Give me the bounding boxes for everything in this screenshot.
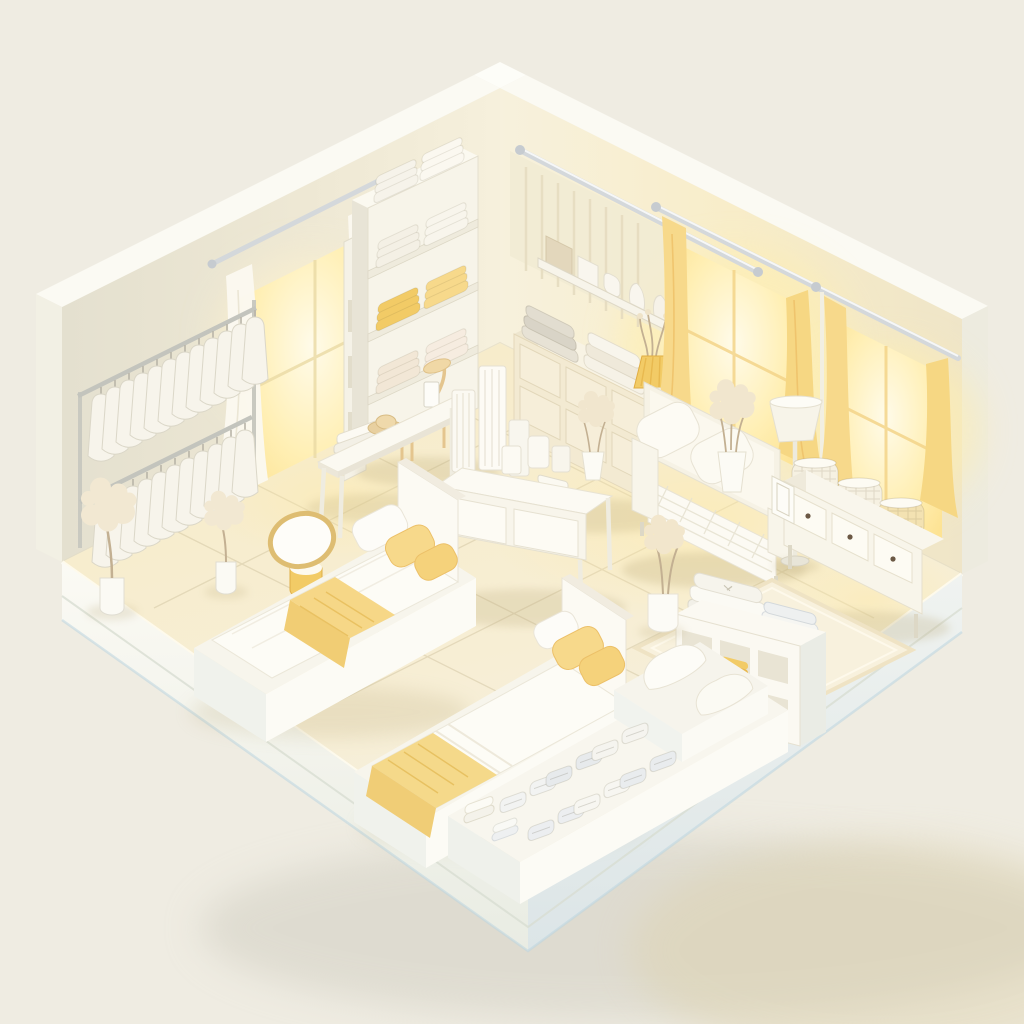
left-wall-endcap (36, 294, 62, 562)
sofa-arm-left (632, 438, 658, 522)
rod-finial (208, 260, 217, 269)
standing-card (424, 382, 439, 407)
showroom-illustration (0, 0, 1024, 1024)
cube-side (800, 632, 826, 746)
isometric-room-render (0, 0, 1024, 1024)
shelving-side (352, 200, 368, 460)
